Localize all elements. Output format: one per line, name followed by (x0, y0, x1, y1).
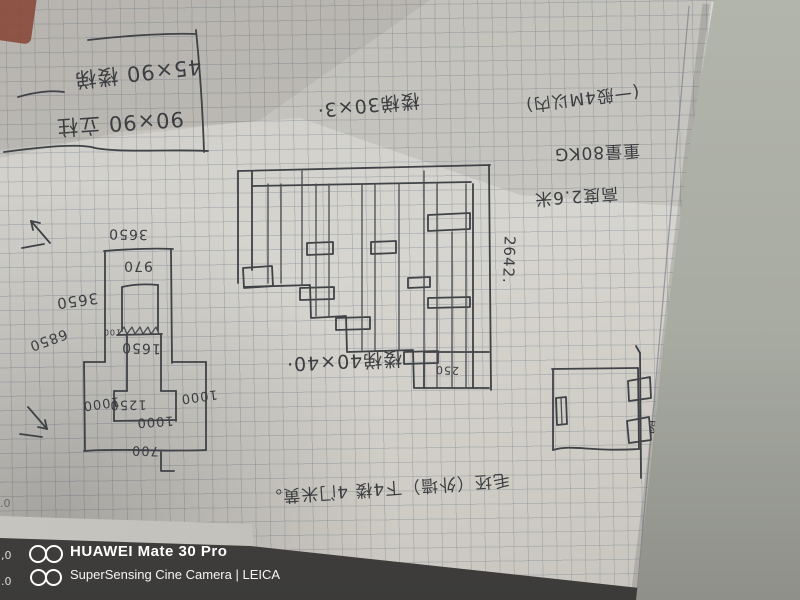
edge-fragment-1: 2,0 (0, 549, 12, 562)
watermark-camera: SuperSensing Cine Camera | LEICA (70, 567, 280, 582)
dim-base-bottom: 700 (122, 442, 168, 457)
room-plan-drawing (552, 346, 651, 478)
camera-logo-icon (45, 545, 63, 563)
stair-rise-dimension: 2642. (499, 230, 517, 291)
dim-hatch: 100 (101, 327, 123, 335)
edge-fragment-pencil: 2.0 (0, 497, 11, 510)
dim-base-mid: 1000 (130, 412, 181, 429)
room-label: 防盗 (641, 417, 688, 436)
photo-of-hand-sketch: 45×90 楼梯 90×90 立柱 楼梯30×3· (一般4M以内) 重量80K… (0, 0, 800, 600)
edge-fragment-2: 2.0 (0, 575, 12, 588)
dim-foot-center: 1250 (103, 397, 153, 412)
dim-inner-width: 970 (112, 258, 164, 273)
step-dimension: 250 (430, 363, 464, 376)
dim-top-width: 3650 (96, 225, 160, 241)
section-drawing (84, 249, 206, 471)
camera-logo-icon (45, 569, 62, 586)
watermark-device: HUAWEI Mate 30 Pro (70, 543, 227, 560)
direction-arrows (20, 221, 50, 437)
dim-inner-height: 1650 (112, 339, 170, 356)
